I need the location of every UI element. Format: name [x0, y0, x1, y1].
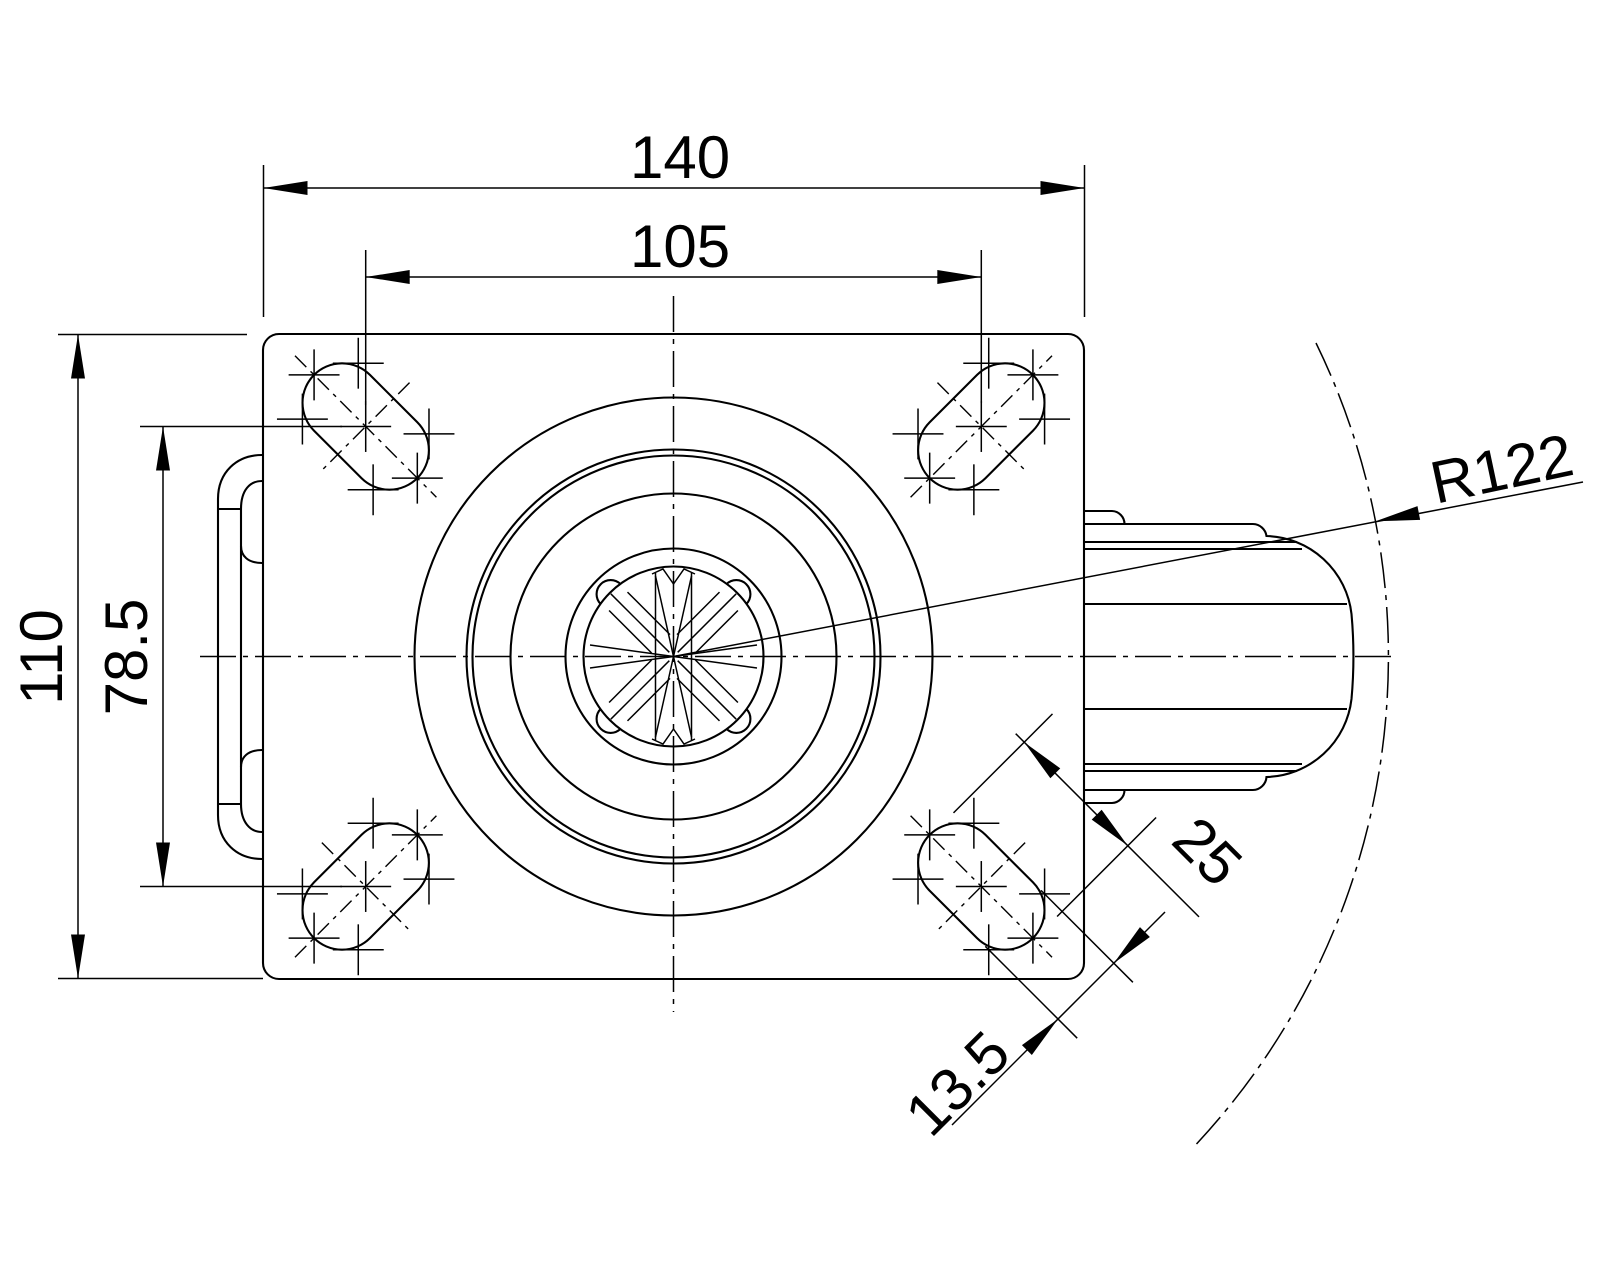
caster-top-view-drawing: 140 105 110 78.5 25	[0, 0, 1600, 1280]
dim-slot-length-label: 25	[1160, 804, 1255, 899]
mounting-slot-bottom-right	[867, 772, 1096, 1001]
dim-swivel-radius: R122	[674, 421, 1584, 656]
dim-plate-width-label: 140	[630, 124, 730, 191]
dim-hole-spacing-y-label: 78.5	[93, 599, 160, 716]
swivel-radius-arc	[1197, 343, 1389, 1144]
dim-plate-height-label: 110	[8, 609, 75, 705]
dim-slot-width-label: 13.5	[893, 1019, 1023, 1149]
dim-swivel-radius-label: R122	[1425, 421, 1579, 516]
technical-drawing-canvas: 140 105 110 78.5 25	[0, 0, 1600, 1280]
center-lines	[200, 296, 1392, 1012]
dim-slot-width: 13.5	[893, 890, 1165, 1148]
dim-hole-spacing-x-label: 105	[630, 213, 730, 280]
